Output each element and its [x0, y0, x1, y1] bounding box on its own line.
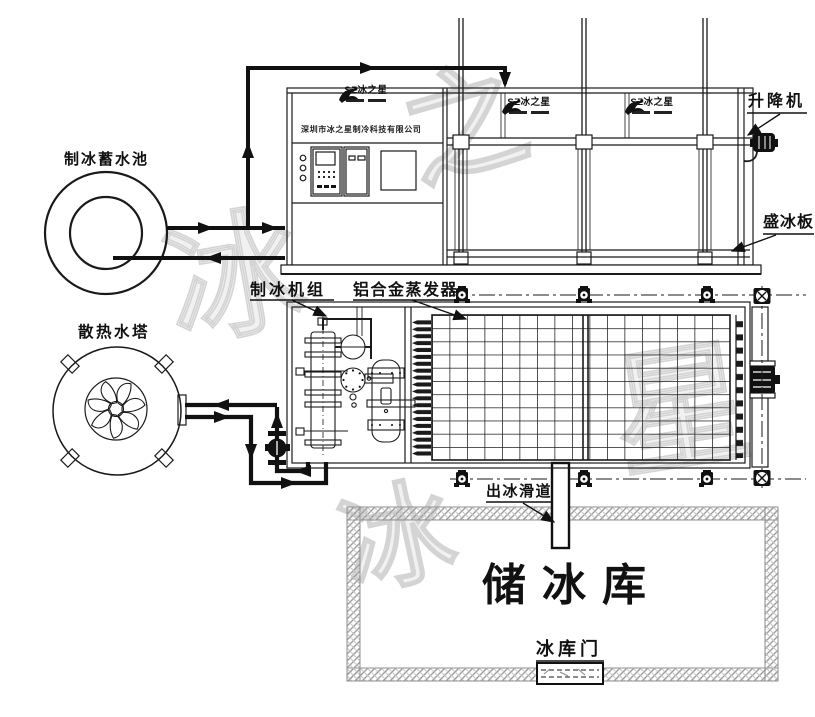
lift-posts: [453, 18, 713, 264]
brand-logo-tank-2: SZ冰之星: [622, 98, 682, 114]
water-pool: [45, 172, 167, 294]
lift-motor: [744, 133, 778, 161]
storage-door-symbol: [537, 663, 603, 684]
ice-unit-label: 制冰机组: [250, 282, 326, 300]
brand-logo-tank-1: SZ冰之星: [499, 98, 559, 114]
elevation-view: [281, 18, 778, 274]
pool-label: 制冰蓄水池: [64, 152, 149, 169]
machine-base: [281, 265, 761, 274]
ice-chute-symbol: [552, 463, 569, 548]
drive-rail: [750, 307, 780, 467]
control-cabinet: [292, 88, 447, 265]
ice-chute-label: 出冰滑道: [486, 484, 552, 501]
control-panel-door: [344, 147, 369, 196]
logo-swoosh-icon: [336, 86, 362, 104]
ice-plate-label: 盛冰板: [763, 214, 814, 232]
evaporator-label: 铝合金蒸发器: [353, 282, 458, 300]
control-panel-display: [311, 147, 342, 196]
diagram-linework: [0, 0, 815, 717]
logo-swoosh-icon: [622, 98, 648, 116]
diagram-canvas: 冰 之 星 冰: [0, 0, 815, 717]
cooling-tower: [53, 347, 186, 475]
cooling-tower-label: 散热水塔: [78, 324, 150, 341]
drive-motor: [750, 366, 780, 393]
evaporator-grid: [411, 315, 744, 460]
pool-pipes: [113, 68, 505, 258]
plan-view: [287, 286, 806, 488]
lift-label: 升降机: [748, 93, 805, 111]
refrigeration-unit: [296, 307, 415, 455]
side-panel: [381, 151, 416, 190]
tower-feet: [61, 355, 173, 467]
logo-swoosh-icon: [499, 98, 525, 116]
storage-door-label: 冰库门: [536, 640, 602, 660]
ice-storage-label: 储冰库: [482, 562, 662, 610]
receiver-vessel: [368, 360, 404, 442]
brand-logo-cabinet: SZ冰之星: [336, 86, 396, 102]
company-name: 深圳市冰之星制冷科技有限公司: [301, 124, 421, 135]
